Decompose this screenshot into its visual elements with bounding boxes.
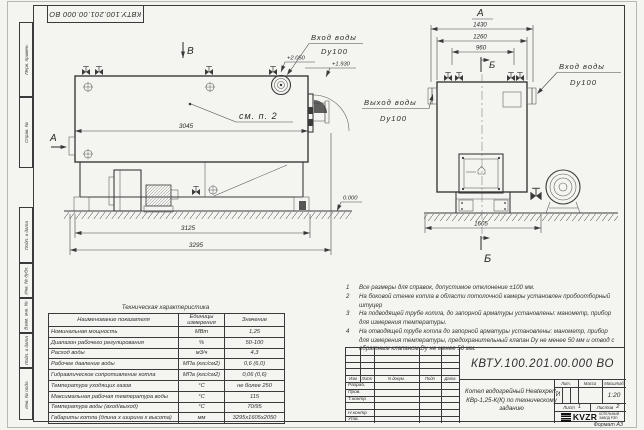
svg-text:Dy100: Dy100 [380,114,407,123]
tech-cell: 0,06 (0,6) [225,370,285,381]
tech-cell: не более 250 [225,380,285,391]
tech-cell: 4,3 [225,348,285,359]
note-item: 1Все размеры для справок, допустимое отк… [346,284,618,293]
note-text: На боковой стенке котла в области потоло… [359,293,618,311]
svg-text:см. п. 2: см. п. 2 [239,111,278,121]
stamp-row-tkontr: Т.контр [348,397,366,402]
flange-mark-icon [205,82,215,92]
blower-fan-front [546,170,580,213]
view-mark-B: В [181,42,194,58]
stamp-grid-line [346,389,459,390]
svg-text:Dy100: Dy100 [570,78,597,87]
note-number: 3 [346,310,359,328]
svg-text:А: А [476,8,484,19]
svg-text:Б: Б [489,60,495,71]
tech-header-cell: Единицы измерения [179,314,225,327]
stamp-grid-line [346,362,459,363]
tech-table-row: Температура воды (вход/выход)°С70/95 [49,402,285,413]
tech-cell: 3295х1605х2050 [225,413,285,424]
outlet-label-front: Выход воды Dy100 [362,93,435,123]
valve-icon [444,73,452,82]
stamp-lit-label: Лит. [554,379,578,387]
svg-text:0.000: 0.000 [343,196,358,202]
stamp-sheet-cell: Лист 1 [554,403,590,411]
tech-table-row: Максимальная рабочая температура воды°С1… [49,391,285,402]
tech-cell: 1,25 [225,327,285,338]
title-block: Изм Лист N докум. Подп Дата Разраб. Пров… [345,347,625,422]
tech-table: Наименование показателя Единицы измерени… [48,313,285,424]
callout-see-item-2: см. п. 2 [189,103,293,122]
svg-text:1260: 1260 [473,34,487,41]
stamp-scale-value: 1:20 [602,387,626,403]
valve-icon [82,67,90,76]
stamp-row-nkontr: Н.контр [348,411,367,416]
tech-cell: Расход воды [49,348,179,359]
ground-line-front [424,213,618,221]
tech-cell: мм [179,413,225,424]
valve-icon [516,73,524,82]
valve-icon [269,67,277,76]
level-mark-inlet: +1.930 [305,62,356,78]
stamp-grid-line [374,348,375,423]
tech-table-row: Номинальная мощностьМВт1,25 [49,327,285,338]
stamp-col-izm: Изм [346,375,360,382]
svg-text:Вход воды: Вход воды [559,62,605,71]
dim-3045: 3045 [75,123,308,133]
sheets-value: 2 [616,404,619,410]
blower-fan-side [109,170,178,212]
dim-1260: 1260 [437,34,527,81]
tech-cell: 70/95 [225,402,285,413]
tech-table-row: Рабочее давление водыМПа (кгс/см2)0,6 (6… [49,359,285,370]
tech-cell: Максимальная рабочая температура воды [49,391,179,402]
stamp-grid-line [441,348,442,423]
svg-text:Вход воды: Вход воды [311,33,357,42]
dim-960: 960 [452,45,514,66]
view-mark-A-side: А [49,133,67,149]
note-number: 2 [346,293,359,311]
note-text: Все размеры для справок, допустимое откл… [359,284,618,293]
kvzr-logo-icon [561,413,571,422]
stamp-grid-line [346,402,459,403]
section-mark-B-bottom: Б [481,236,491,265]
sheet-label: Лист [563,405,575,410]
tech-cell: 50-100 [225,337,285,348]
tech-cell: Температура воды (вход/выход) [49,402,179,413]
svg-text:Dy100: Dy100 [321,47,348,56]
stamp-grid-line [346,355,459,356]
svg-text:3125: 3125 [181,225,196,232]
tech-cell: м3/ч [179,348,225,359]
fan-motor [146,185,171,206]
svg-text:Выход воды: Выход воды [364,98,417,107]
stamp-sheets-cell: Листов 2 [590,403,626,411]
stamp-doc-number: КВТУ.100.201.00.000 ВО [459,348,626,379]
tech-table-row: Диапазон рабочего регулирования%50-100 [49,337,285,348]
valve-icon [205,67,213,76]
tech-cell: 115 [225,391,285,402]
section-mark-B-top: Б [481,57,495,72]
note-item: 2На боковой стенке котла в области потол… [346,293,618,311]
valve-icon [507,73,515,82]
sheets-label: Листов [597,405,614,410]
inlet-flange-front [527,88,536,104]
stamp-col-list: Лист [360,375,374,382]
valve-icon [455,73,463,82]
tech-cell: °С [179,380,225,391]
stamp-grid-line [346,368,459,369]
stamp-lit-value: И [554,387,562,403]
svg-text:1430: 1430 [473,22,487,29]
sight-port [503,92,521,107]
door-latch [478,167,485,175]
tech-header-cell: Наименование показателя [49,314,179,327]
level-mark-ground: 0.000 [335,196,362,212]
company-logo-text: KVZR [573,412,597,422]
stamp-mass-label: Масса [578,379,602,387]
valve-icon [530,188,541,200]
svg-text:3045: 3045 [179,123,194,130]
stamp-row-prov: Пров. [348,390,361,395]
tech-cell: Номинальная мощность [49,327,179,338]
tech-table-row: Гидравлическое сопротивление котлаМПа (к… [49,370,285,381]
tech-cell: % [179,337,225,348]
svg-text:Б: Б [484,253,491,265]
company-name-line2: ЗАВОД РЭП [599,417,619,421]
tech-header-cell: Значение [225,314,285,327]
inlet-label-front: Вход воды Dy100 [536,62,621,95]
svg-text:А: А [49,133,57,144]
sheet-value: 1 [578,404,581,410]
front-view: А 1430 1260 960 Б [362,8,621,265]
tech-cell: Рабочее давление воды [49,359,179,370]
company-name: КОТЕЛЬНЫЙ ЗАВОД РЭП [599,413,619,420]
tech-table-header: Наименование показателя Единицы измерени… [49,314,285,327]
tech-cell: °С [179,391,225,402]
tech-table-row: Расход водым3/ч4,3 [49,348,285,359]
stamp-row-razrab: Разраб. [348,383,365,388]
tech-cell: МВт [179,327,225,338]
tech-cell: МПа (кгс/см2) [179,370,225,381]
svg-text:1605: 1605 [474,221,488,228]
stamp-col-podp: Подп [419,375,441,382]
stamp-scale-label: Масштаб [602,379,626,387]
valve-icon [192,187,200,196]
tech-table-row: Температура уходящих газов°Сне более 250 [49,380,285,391]
svg-text:960: 960 [476,45,487,52]
stamp-title: Котел водогрейный Heatexpert-КВр-1,25-К(… [459,379,564,423]
tech-cell: Габариты котла (длина х ширина х высота) [49,413,179,424]
note-number: 1 [346,284,359,293]
tech-cell: Гидравлическое сопротивление котла [49,370,179,381]
tech-table-row: Габариты котла (длина х ширина х высота)… [49,413,285,424]
inlet-nozzle-side [272,76,291,95]
tech-table-title: Техническая характеристика [48,304,283,311]
side-view: 3045 3125 3295 +2.050 +1.930 [49,33,363,255]
tech-cell: Температура уходящих газов [49,380,179,391]
tech-cell: °С [179,402,225,413]
view-label-A: А [472,8,493,19]
flange-mark-icon [208,185,218,195]
tech-cell: 0,6 (6,0) [225,359,285,370]
note-item: 3На подводящей трубе котла, до запорной … [346,310,618,328]
flange-mark-icon [83,82,93,92]
ground-line-side [64,211,352,219]
stamp-col-data: Дата [441,375,459,382]
tech-cell: МПа (кгс/см2) [179,359,225,370]
svg-text:+2.050: +2.050 [287,56,306,62]
valve-icon [95,67,103,76]
furnace-door [459,154,503,193]
notes-block: 1Все размеры для справок, допустимое отк… [346,284,618,354]
note-text: На подводящей трубе котла, до запорной а… [359,310,618,328]
rear-fitting [69,137,75,155]
svg-text:3295: 3295 [189,242,204,249]
svg-text:+1.930: +1.930 [332,62,351,68]
flange-mark-icon [83,149,93,159]
svg-text:В: В [187,46,194,57]
tech-cell: Диапазон рабочего регулирования [49,337,179,348]
stamp-grid-line [570,387,571,403]
stamp-grid-line [346,416,459,417]
stamp-grid-line [419,348,420,423]
support-stand-front [456,192,510,213]
level-mark-top: +2.050 [279,56,315,73]
stamp-row-utv: Утв. [348,417,359,422]
outlet-pipe-side [308,94,349,132]
format-label: Формат А3 [540,422,623,428]
stamp-col-ndokum: N докум. [374,375,419,382]
